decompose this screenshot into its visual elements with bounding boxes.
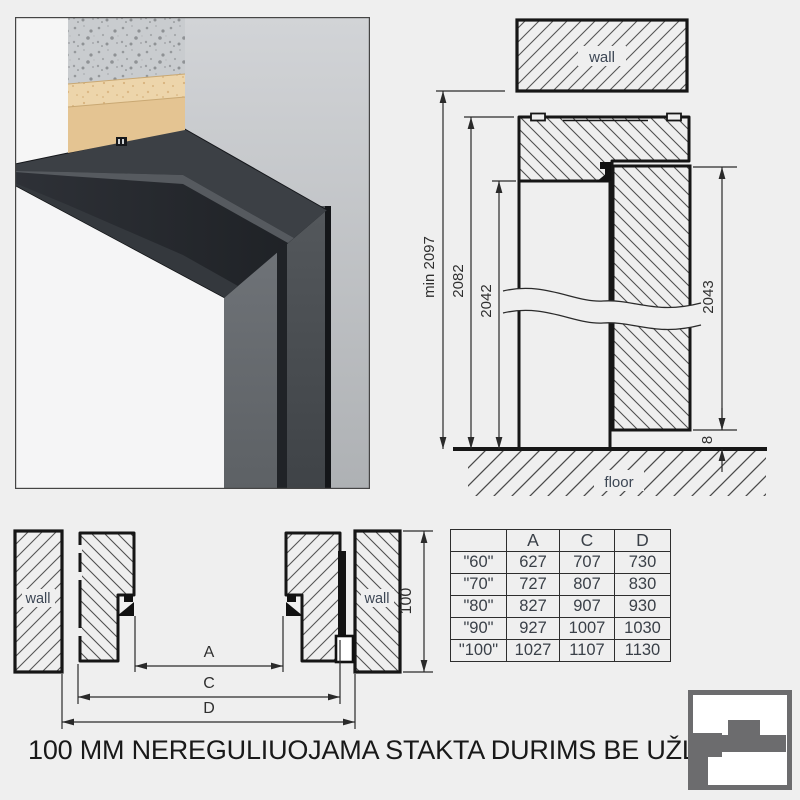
cell-a: 927 — [507, 618, 560, 640]
left-wall-label: wall — [25, 591, 51, 607]
cell-d: 730 — [615, 552, 671, 574]
brand-logo-icon — [688, 690, 792, 790]
fixing-clip — [116, 137, 127, 146]
right-wall-block: wall — [355, 531, 400, 672]
dim-min-total: min 2097 — [421, 236, 438, 298]
dim-c-label: C — [203, 675, 215, 692]
table-row: "60" 627 707 730 — [451, 552, 671, 574]
cell-a: 1027 — [507, 640, 560, 662]
dim-a-label: A — [204, 644, 215, 661]
concrete-layer — [68, 17, 185, 84]
wall-label: wall — [588, 49, 615, 66]
cell-d: 830 — [615, 574, 671, 596]
dim-d-label: D — [203, 700, 215, 717]
table-header-row: A C D — [451, 530, 671, 552]
table-row: "90" 927 1007 1030 — [451, 618, 671, 640]
size-table: A C D "60" 627 707 730 "70" 727 807 830 … — [450, 529, 671, 662]
strike-plate — [336, 636, 353, 662]
right-wall-label: wall — [364, 591, 390, 607]
photo-render — [15, 17, 370, 489]
cell-c: 907 — [560, 596, 615, 618]
horizontal-section-drawing: wall wall A — [5, 525, 450, 735]
cell-size: "90" — [451, 618, 507, 640]
page-title: 100 MM NEREGULIUOJAMA STAKTA DURIMS BE U… — [28, 735, 788, 766]
cell-a: 627 — [507, 552, 560, 574]
floor-label: floor — [604, 474, 633, 491]
door-leaf-section — [613, 166, 690, 430]
cell-c: 807 — [560, 574, 615, 596]
floor: floor — [453, 449, 767, 496]
dim-opening-height: 2042 — [478, 284, 495, 317]
header-a: A — [507, 530, 560, 552]
cell-c: 1107 — [560, 640, 615, 662]
dim-floor-gap: 8 — [699, 436, 716, 444]
table-row: "80" 827 907 930 — [451, 596, 671, 618]
left-wall-block: wall — [15, 531, 62, 672]
cell-size: "70" — [451, 574, 507, 596]
table-row: "100" 1027 1107 1130 — [451, 640, 671, 662]
cell-size: "60" — [451, 552, 507, 574]
cell-d: 930 — [615, 596, 671, 618]
left-frame-profile — [78, 533, 134, 661]
header-d: D — [615, 530, 671, 552]
wall-block: wall — [517, 20, 687, 91]
wall-cross-section — [68, 17, 185, 153]
dim-depth: 100 — [398, 588, 415, 615]
header-c: C — [560, 530, 615, 552]
vertical-section-drawing: wall floor — [410, 5, 800, 510]
table-row: "70" 727 807 830 — [451, 574, 671, 596]
door-leaf-edge — [338, 551, 346, 636]
cell-size: "100" — [451, 640, 507, 662]
cell-a: 827 — [507, 596, 560, 618]
header-size — [451, 530, 507, 552]
cell-c: 707 — [560, 552, 615, 574]
dim-frame-height: 2082 — [450, 264, 467, 297]
right-frame-profile — [286, 533, 353, 662]
cell-d: 1130 — [615, 640, 671, 662]
cell-d: 1030 — [615, 618, 671, 640]
cell-c: 1007 — [560, 618, 615, 640]
cell-a: 727 — [507, 574, 560, 596]
cell-size: "80" — [451, 596, 507, 618]
dim-leaf-height: 2043 — [700, 280, 717, 313]
